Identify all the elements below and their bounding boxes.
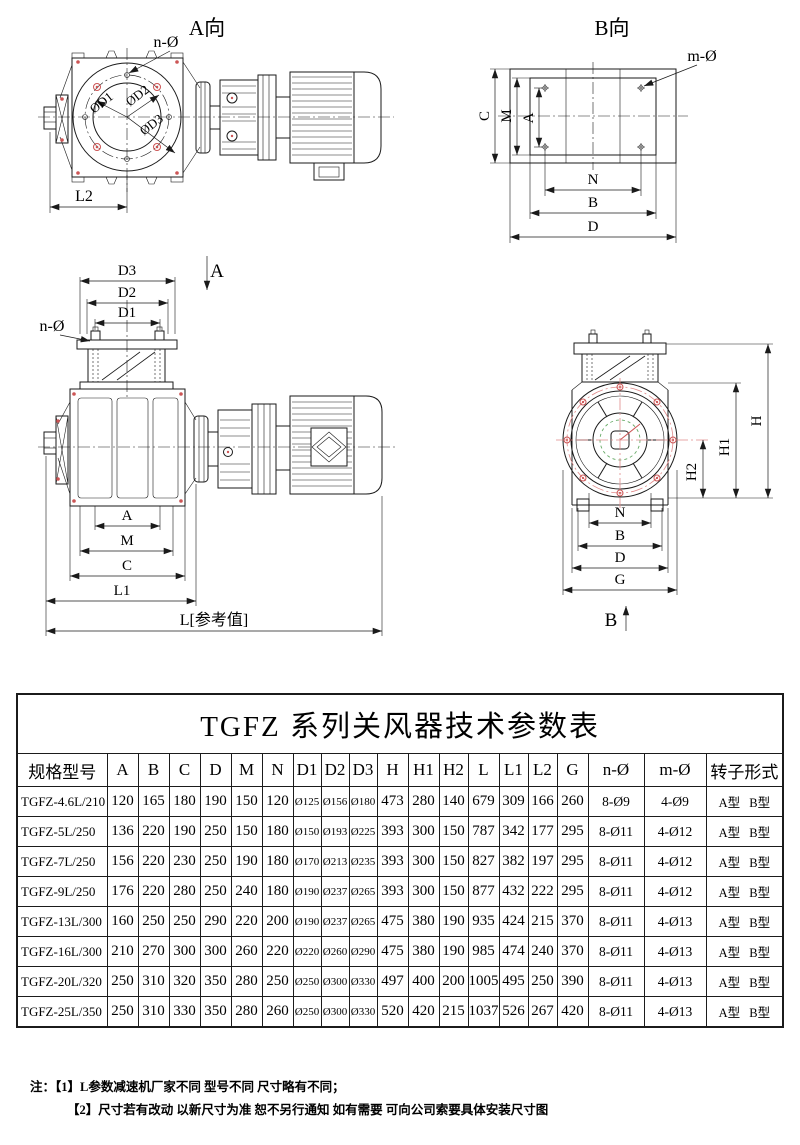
table-cell: 473 [377, 787, 408, 817]
table-cell: Ø213 [321, 847, 349, 877]
table-cell: 150 [439, 877, 468, 907]
table-cell: Ø330 [349, 967, 377, 997]
table-cell: 310 [138, 967, 169, 997]
table-cell: 432 [499, 877, 528, 907]
table-cell: 877 [468, 877, 499, 907]
table-cell: 210 [107, 937, 138, 967]
table-cell: 220 [231, 907, 262, 937]
column-header-14: L1 [499, 754, 528, 787]
table-cell: A型 B型 [706, 847, 783, 877]
table-cell: 420 [408, 997, 439, 1028]
column-header-2: B [138, 754, 169, 787]
table-cell: 300 [408, 847, 439, 877]
table-cell: 4-Ø12 [644, 847, 706, 877]
table-cell: 495 [499, 967, 528, 997]
table-cell: Ø193 [321, 817, 349, 847]
table-row: TGFZ-9L/250176220280250240180Ø190Ø237Ø26… [17, 877, 783, 907]
column-header-12: H2 [439, 754, 468, 787]
table-cell: A型 B型 [706, 937, 783, 967]
note-line-1: 注：【1】L参数减速机厂家不同 型号不同 尺寸略有不同； [30, 1076, 548, 1099]
param-table-container: TGFZ 系列关风器技术参数表 规格型号ABCDMND1D2D3HH1H2LL1… [16, 693, 784, 1028]
table-cell: 220 [262, 937, 293, 967]
table-cell: 390 [557, 967, 588, 997]
table-cell: Ø260 [321, 937, 349, 967]
b-view-hole-label: m-Ø [687, 48, 716, 65]
a-view: A向 [38, 16, 394, 213]
front-view-gearbox-motor [185, 396, 382, 494]
b-view: B向 m-Ø C M [477, 16, 717, 243]
dim-d2-label: D2 [118, 285, 136, 301]
table-cell: 176 [107, 877, 138, 907]
dia2-label: ØD2 [123, 82, 152, 109]
table-cell: Ø125 [293, 787, 321, 817]
table-cell: Ø300 [321, 967, 349, 997]
table-cell: 295 [557, 847, 588, 877]
dim-l2-label: L2 [75, 188, 93, 205]
a-view-machine-outline [38, 48, 394, 192]
note-text-2: 【2】尺寸若有改动 以新尺寸为准 恕不另行通知 如有需要 可向公司索要具体安装尺… [67, 1103, 548, 1117]
param-table-body: TGFZ-4.6L/210120165180190150120Ø125Ø156Ø… [17, 787, 783, 1028]
section-b-label: B [605, 610, 618, 631]
dim-m-label: M [120, 533, 133, 549]
table-cell: 190 [200, 787, 231, 817]
table-cell: 180 [262, 817, 293, 847]
table-cell: TGFZ-13L/300 [17, 907, 107, 937]
table-cell: TGFZ-16L/300 [17, 937, 107, 967]
table-cell: 220 [138, 817, 169, 847]
dim-n-label: N [588, 172, 599, 188]
table-cell: 156 [107, 847, 138, 877]
b-view-annotations: m-Ø C M A N B D [477, 48, 717, 243]
dim-c-label: C [122, 558, 132, 574]
table-cell: TGFZ-4.6L/210 [17, 787, 107, 817]
table-cell: 679 [468, 787, 499, 817]
table-cell: 222 [528, 877, 557, 907]
column-header-6: N [262, 754, 293, 787]
table-cell: 8-Ø11 [588, 967, 644, 997]
dim-l-label: L[参考值] [180, 611, 248, 629]
table-cell: TGFZ-7L/250 [17, 847, 107, 877]
note-line-2: 【2】尺寸若有改动 以新尺寸为准 恕不另行通知 如有需要 可向公司索要具体安装尺… [67, 1099, 548, 1122]
table-cell: 4-Ø13 [644, 967, 706, 997]
table-cell: 197 [528, 847, 557, 877]
table-cell: 350 [200, 997, 231, 1028]
table-cell: 382 [499, 847, 528, 877]
table-cell: 520 [377, 997, 408, 1028]
dia3-label: ØD3 [137, 111, 166, 138]
table-cell: Ø250 [293, 967, 321, 997]
dim-b-label: B [588, 195, 598, 211]
table-cell: 8-Ø11 [588, 937, 644, 967]
table-cell: 380 [408, 907, 439, 937]
table-cell: 150 [231, 787, 262, 817]
dim-m-label: M [499, 109, 515, 122]
spec-sheet: { "drawings": { "a_view": { "title": "A向… [0, 0, 800, 1145]
column-header-7: D1 [293, 754, 321, 787]
table-cell: 280 [231, 967, 262, 997]
table-cell: 474 [499, 937, 528, 967]
table-cell: 190 [439, 907, 468, 937]
table-cell: 250 [262, 967, 293, 997]
table-cell: 393 [377, 877, 408, 907]
table-cell: A型 B型 [706, 817, 783, 847]
param-table: TGFZ 系列关风器技术参数表 规格型号ABCDMND1D2D3HH1H2LL1… [16, 693, 784, 1028]
table-cell: 280 [408, 787, 439, 817]
column-header-15: L2 [528, 754, 557, 787]
table-cell: 180 [169, 787, 200, 817]
table-cell: Ø190 [293, 907, 321, 937]
table-cell: TGFZ-5L/250 [17, 817, 107, 847]
table-cell: 200 [262, 907, 293, 937]
table-cell: 309 [499, 787, 528, 817]
column-header-18: m-Ø [644, 754, 706, 787]
a-view-gearbox-motor [183, 62, 381, 180]
table-row: TGFZ-20L/320250310320350280250Ø250Ø300Ø3… [17, 967, 783, 997]
table-title: TGFZ 系列关风器技术参数表 [17, 694, 783, 754]
table-cell: 8-Ø9 [588, 787, 644, 817]
column-header-16: G [557, 754, 588, 787]
table-cell: Ø235 [349, 847, 377, 877]
table-cell: Ø265 [349, 877, 377, 907]
side-view: H H1 H2 N B D G B [556, 330, 773, 631]
table-cell: 180 [262, 877, 293, 907]
table-cell: 150 [439, 817, 468, 847]
table-cell: A型 B型 [706, 997, 783, 1028]
table-cell: 140 [439, 787, 468, 817]
front-hole-label: n-Ø [40, 318, 65, 335]
table-cell: 424 [499, 907, 528, 937]
table-row: TGFZ-7L/250156220230250190180Ø170Ø213Ø23… [17, 847, 783, 877]
dim-a-label: A [122, 508, 133, 524]
param-table-header-row: 规格型号ABCDMND1D2D3HH1H2LL1L2Gn-Øm-Ø转子形式 [17, 754, 783, 787]
table-cell: 8-Ø11 [588, 847, 644, 877]
table-cell: 250 [200, 877, 231, 907]
table-cell: 8-Ø11 [588, 877, 644, 907]
table-cell: 250 [169, 907, 200, 937]
table-cell: 320 [169, 967, 200, 997]
table-cell: 220 [138, 877, 169, 907]
note-text-1: 【1】L参数减速机厂家不同 型号不同 尺寸略有不同； [55, 1080, 345, 1094]
table-cell: 120 [107, 787, 138, 817]
table-cell: Ø156 [321, 787, 349, 817]
dim-d-label: D [615, 550, 626, 566]
table-cell: 393 [377, 847, 408, 877]
table-cell: 250 [528, 967, 557, 997]
table-cell: Ø300 [321, 997, 349, 1028]
table-cell: 400 [408, 967, 439, 997]
table-cell: 935 [468, 907, 499, 937]
a-view-hole-label: n-Ø [154, 34, 179, 51]
dim-d3-label: D3 [118, 263, 136, 279]
table-cell: 370 [557, 937, 588, 967]
engineering-drawings: A向 [0, 0, 800, 665]
table-cell: 180 [262, 847, 293, 877]
table-cell: 985 [468, 937, 499, 967]
column-header-13: L [468, 754, 499, 787]
table-cell: 300 [169, 937, 200, 967]
table-cell: 310 [138, 997, 169, 1028]
table-cell: TGFZ-20L/320 [17, 967, 107, 997]
dim-h2-label: H2 [684, 463, 700, 481]
table-cell: 8-Ø11 [588, 997, 644, 1028]
table-cell: 4-Ø12 [644, 817, 706, 847]
table-cell: Ø330 [349, 997, 377, 1028]
a-view-annotations: n-Ø ØD1 ØD2 ØD3 L2 [50, 34, 178, 213]
table-cell: 260 [557, 787, 588, 817]
table-cell: TGFZ-9L/250 [17, 877, 107, 907]
table-cell: 260 [231, 937, 262, 967]
table-cell: Ø290 [349, 937, 377, 967]
table-cell: 370 [557, 907, 588, 937]
table-cell: 300 [200, 937, 231, 967]
table-cell: 200 [439, 967, 468, 997]
table-cell: 150 [231, 817, 262, 847]
table-cell: 215 [439, 997, 468, 1028]
table-cell: 136 [107, 817, 138, 847]
table-cell: 295 [557, 817, 588, 847]
notes-prefix: 注： [30, 1080, 55, 1094]
table-cell: 1005 [468, 967, 499, 997]
b-view-title: B向 [594, 16, 629, 40]
table-row: TGFZ-4.6L/210120165180190150120Ø125Ø156Ø… [17, 787, 783, 817]
table-cell: 330 [169, 997, 200, 1028]
table-cell: 250 [200, 847, 231, 877]
notes: 注：【1】L参数减速机厂家不同 型号不同 尺寸略有不同； 【2】尺寸若有改动 以… [30, 1076, 548, 1122]
dim-b-label: B [615, 528, 625, 544]
column-header-4: D [200, 754, 231, 787]
table-cell: 190 [439, 937, 468, 967]
table-row: TGFZ-16L/300210270300300260220Ø220Ø260Ø2… [17, 937, 783, 967]
table-cell: 240 [528, 937, 557, 967]
dim-d-label: D [588, 219, 599, 235]
table-cell: Ø250 [293, 997, 321, 1028]
table-cell: A型 B型 [706, 967, 783, 997]
table-cell: A型 B型 [706, 787, 783, 817]
column-header-10: H [377, 754, 408, 787]
table-row: TGFZ-5L/250136220190250150180Ø150Ø193Ø22… [17, 817, 783, 847]
front-view: D3 D2 D1 n-Ø A [38, 256, 396, 636]
front-view-annotations-top: D3 D2 D1 n-Ø A [40, 256, 225, 341]
table-cell: 475 [377, 937, 408, 967]
table-cell: 526 [499, 997, 528, 1028]
front-view-machine-outline [38, 300, 396, 506]
table-cell: 350 [200, 967, 231, 997]
column-header-0: 规格型号 [17, 754, 107, 787]
table-cell: 4-Ø9 [644, 787, 706, 817]
table-cell: 380 [408, 937, 439, 967]
table-cell: Ø225 [349, 817, 377, 847]
table-cell: TGFZ-25L/350 [17, 997, 107, 1028]
dia1-label: ØD1 [87, 89, 116, 116]
column-header-1: A [107, 754, 138, 787]
table-cell: 475 [377, 907, 408, 937]
table-cell: 267 [528, 997, 557, 1028]
table-cell: Ø150 [293, 817, 321, 847]
dim-c-label: C [477, 111, 493, 121]
table-cell: 300 [408, 817, 439, 847]
table-cell: 393 [377, 817, 408, 847]
dim-h-label: H [749, 415, 765, 426]
column-header-19: 转子形式 [706, 754, 783, 787]
dim-n-label: N [615, 505, 626, 521]
table-cell: 270 [138, 937, 169, 967]
table-cell: 120 [262, 787, 293, 817]
table-cell: Ø237 [321, 877, 349, 907]
table-cell: Ø190 [293, 877, 321, 907]
table-cell: 250 [107, 997, 138, 1028]
table-cell: 177 [528, 817, 557, 847]
table-cell: 4-Ø12 [644, 877, 706, 907]
table-cell: 280 [169, 877, 200, 907]
table-cell: 260 [262, 997, 293, 1028]
front-view-annotations-bottom: A M C L1 L[参考值] [46, 456, 382, 636]
table-cell: 295 [557, 877, 588, 907]
table-cell: 250 [138, 907, 169, 937]
table-cell: Ø170 [293, 847, 321, 877]
table-cell: 220 [138, 847, 169, 877]
a-view-title: A向 [189, 16, 225, 40]
table-cell: A型 B型 [706, 907, 783, 937]
table-cell: 230 [169, 847, 200, 877]
table-cell: 250 [107, 967, 138, 997]
column-header-11: H1 [408, 754, 439, 787]
column-header-5: M [231, 754, 262, 787]
table-cell: 420 [557, 997, 588, 1028]
table-cell: 4-Ø13 [644, 907, 706, 937]
table-cell: 497 [377, 967, 408, 997]
section-a-label: A [210, 261, 224, 282]
table-cell: 150 [439, 847, 468, 877]
table-cell: Ø237 [321, 907, 349, 937]
table-cell: 240 [231, 877, 262, 907]
table-cell: Ø220 [293, 937, 321, 967]
table-cell: 8-Ø11 [588, 907, 644, 937]
table-cell: 215 [528, 907, 557, 937]
table-cell: Ø180 [349, 787, 377, 817]
table-cell: 300 [408, 877, 439, 907]
table-cell: 166 [528, 787, 557, 817]
column-header-17: n-Ø [588, 754, 644, 787]
table-cell: 250 [200, 817, 231, 847]
table-cell: Ø265 [349, 907, 377, 937]
table-cell: 787 [468, 817, 499, 847]
table-cell: 4-Ø13 [644, 937, 706, 967]
table-row: TGFZ-25L/350250310330350280260Ø250Ø300Ø3… [17, 997, 783, 1028]
table-cell: 827 [468, 847, 499, 877]
table-cell: A型 B型 [706, 877, 783, 907]
table-cell: 8-Ø11 [588, 817, 644, 847]
table-cell: 4-Ø13 [644, 997, 706, 1028]
column-header-3: C [169, 754, 200, 787]
side-view-machine-outline [556, 330, 708, 511]
dim-a-label: A [521, 112, 537, 123]
table-cell: 1037 [468, 997, 499, 1028]
table-cell: 160 [107, 907, 138, 937]
dim-l1-label: L1 [114, 583, 131, 599]
dim-h1-label: H1 [717, 438, 733, 456]
table-cell: 190 [169, 817, 200, 847]
table-cell: 342 [499, 817, 528, 847]
table-cell: 280 [231, 997, 262, 1028]
column-header-8: D2 [321, 754, 349, 787]
table-cell: 190 [231, 847, 262, 877]
table-row: TGFZ-13L/300160250250290220200Ø190Ø237Ø2… [17, 907, 783, 937]
dim-g-label: G [615, 572, 626, 588]
column-header-9: D3 [349, 754, 377, 787]
table-cell: 165 [138, 787, 169, 817]
table-cell: 290 [200, 907, 231, 937]
